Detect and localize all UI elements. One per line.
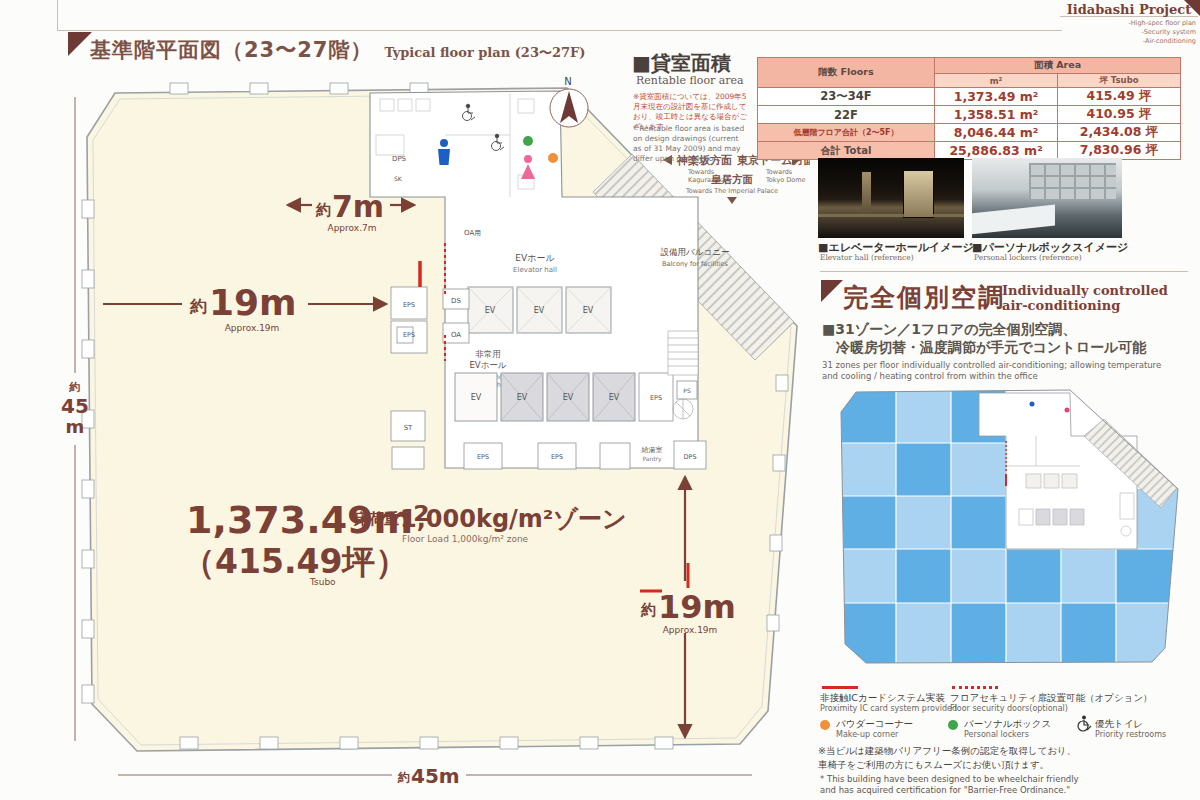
balcony-label-jp: 設備用バルコニー <box>661 247 730 257</box>
dim-45mb-prefix: 約 <box>397 770 410 784</box>
aircon-title-en: Individually controlled air-conditioning <box>1002 284 1168 314</box>
eps-label: EPS <box>403 301 415 309</box>
dim-45m-num: 45 <box>61 394 89 418</box>
rentable-note-en: * Rentable floor area is based on design… <box>633 124 749 165</box>
dim-45m-bottom: 約 45m <box>118 764 752 788</box>
makeup-corner-dot <box>548 153 558 163</box>
lockers-photo-caption-en: Personal lockers (reference) <box>974 253 1082 262</box>
locker-grid <box>1029 163 1116 201</box>
lockers-dot <box>948 720 958 730</box>
ev-label: EV <box>534 306 545 315</box>
ev-label: EV <box>583 306 594 315</box>
st-label: ST <box>404 424 413 432</box>
dir-palace-jp: 皇居方面 <box>711 173 754 185</box>
area-tsubo-en: Tsubo <box>309 577 336 587</box>
floor-cell: 合計 Total <box>758 142 935 160</box>
table-row: 23〜34F 1,373.49 m² 415.49 坪 <box>758 88 1181 106</box>
makeup-corner-dot <box>820 720 830 730</box>
col-area: 面積 Area <box>935 58 1181 74</box>
aircon-zone-plan <box>820 386 1190 684</box>
rentable-heading-en: Rentable floor area <box>636 74 744 87</box>
ev-label: EV <box>485 306 496 315</box>
sk-label: SK <box>394 175 403 182</box>
dim-7m-value: 7m <box>332 189 384 224</box>
eps-label: EPS <box>477 453 489 461</box>
ev-label: EV <box>609 393 620 402</box>
compass: N <box>550 76 588 127</box>
mini-male-icon <box>1030 402 1035 407</box>
col-floors: 階数 Floors <box>758 58 935 88</box>
dim-7m-en: Approx.7m <box>328 223 377 233</box>
balcony-label-en: Balcony for facilities <box>662 260 728 268</box>
pantry-label-jp: 給湯室 <box>641 446 663 454</box>
title-marker <box>68 32 92 56</box>
table-row: 低層階フロア合計（2〜5F） 8,046.44 m² 2,434.08 坪 <box>758 124 1181 142</box>
emergency-ev-jp1: 非常用 <box>475 349 501 359</box>
tsubo-cell: 410.95 坪 <box>1058 106 1181 124</box>
main-floor-plan: EVホール Elevator hall EV EV EV DS OA 非常用 E… <box>40 75 810 800</box>
m2-cell: 1,358.51 m² <box>935 106 1058 124</box>
col-tsubo: 坪 Tsubo <box>1058 74 1181 88</box>
eps-label: EPS <box>403 331 415 339</box>
table-row: 合計 Total 25,886.83 m² 7,830.96 坪 <box>758 142 1181 160</box>
area-tsubo: （415.49坪） <box>182 542 408 581</box>
personal-lockers-dot <box>523 136 533 146</box>
elevator-hall-photo <box>818 158 964 238</box>
rentable-heading-jp: ■貸室面積 <box>632 50 731 77</box>
dim-19m-prefix: 約 <box>189 296 207 316</box>
barrier-note-en1: * This building have been designed to be… <box>820 774 1079 785</box>
dim-19m-right-value: 19m <box>658 588 736 626</box>
aircon-subtitle-line2: 冷暖房切替・温度調節が手元でコントロール可能 <box>836 338 1146 357</box>
barrier-note-en2: and has acquired certification for "Barr… <box>820 785 1070 796</box>
eps-label: EPS <box>650 394 662 402</box>
wheelchair-icon <box>1076 715 1092 733</box>
pantry-label-en: Pantry <box>642 455 662 463</box>
page-title-jp: 基準階平面図（23〜27階） <box>90 36 372 64</box>
brand-subline-3: -Air-conditioning <box>1100 36 1196 46</box>
aircon-title-en-line2: air-conditioning <box>1002 299 1168 314</box>
emergency-ev-jp2: EVホール <box>469 360 506 370</box>
ic-card-line-swatch <box>822 686 858 689</box>
page-title: 基準階平面図（23〜27階） Typical floor plan (23〜27… <box>90 36 585 64</box>
floor-cell: 23〜34F <box>758 88 935 106</box>
floor-load-en: Floor Load 1,000kg/m² zone <box>402 534 529 544</box>
rentable-area-table: 階数 Floors 面積 Area m² 坪 Tsubo 23〜34F 1,37… <box>757 57 1181 160</box>
dps-label: DPS <box>683 453 696 461</box>
dps-label: DPS <box>392 155 407 163</box>
security-door-label-en: Floor security doors(optional) <box>950 704 1068 713</box>
dim-19m-value: 19m <box>209 282 297 323</box>
elevator-photo-caption-en: Elevator hall (reference) <box>820 253 914 262</box>
table-header-row: 階数 Floors 面積 Area <box>758 58 1181 74</box>
dim-45m-prefix: 約 <box>69 381 81 394</box>
ps-label: PS <box>683 387 691 394</box>
aircon-title-en-line1: Individually controlled <box>1002 284 1168 299</box>
arrow-down-icon <box>727 197 737 204</box>
ev-hall-label-jp: EVホール <box>515 253 554 263</box>
page-title-en: Typical floor plan (23〜27F) <box>384 44 585 62</box>
ev-hall-label-en: Elevator hall <box>513 266 557 274</box>
aircon-title-jp: 完全個別空調 <box>843 281 1005 314</box>
floor-cell: 22F <box>758 106 935 124</box>
m2-cell: 1,373.49 m² <box>935 88 1058 106</box>
oa-label: OA <box>451 331 461 339</box>
locker-counter <box>972 205 1055 234</box>
barrier-note-jp1: ※当ビルは建築物バリアフリー条例の認定を取得しており、 <box>818 744 1076 757</box>
personal-lockers-photo <box>972 158 1122 238</box>
makeup-label-en: Make-up corner <box>836 730 898 739</box>
lockers-label-en: Personal lockers <box>964 730 1029 739</box>
compass-n: N <box>564 76 571 87</box>
tsubo-cell: 415.49 坪 <box>1058 88 1181 106</box>
section-divider <box>820 271 1188 272</box>
elevator-door <box>903 170 934 218</box>
brand-title: Iidabashi Project <box>1062 2 1196 17</box>
dim-7m-prefix: 約 <box>315 201 331 219</box>
ic-card-label-en: Proximity IC card system provided <box>820 704 957 713</box>
eps-label: EPS <box>551 453 563 461</box>
dir-dome-en1: Towards <box>765 168 793 176</box>
aircon-marker <box>821 280 843 302</box>
m2-cell: 25,886.83 m² <box>935 142 1058 160</box>
aircon-body-line2: and cooling / heating control from withi… <box>822 371 1038 383</box>
dim-19m-en: Approx.19m <box>225 323 280 333</box>
barrier-note-jp2: 車椅子をご利用の方にもスムーズにお使い頂けます。 <box>818 758 1049 771</box>
floor-highlight <box>818 214 964 217</box>
dim-45mb-value: 45m <box>411 764 460 788</box>
ev-label: EV <box>471 393 482 402</box>
aircon-subtitle-line1: ■31ゾーン／1フロアの完全個別空調、 <box>822 320 1076 339</box>
elevator-door-slit <box>862 172 871 214</box>
left-margin-rule <box>57 0 58 31</box>
ev-label: EV <box>517 393 528 402</box>
floor-load-value: 1,000kg/m²ゾーン <box>400 505 626 533</box>
dim-19m-right-en: Approx.19m <box>663 625 718 635</box>
ds-label: DS <box>451 297 461 305</box>
dim-19m-right-prefix: 約 <box>640 601 656 619</box>
col-m2: m² <box>935 74 1058 88</box>
dim-45m-unit: m <box>66 416 85 437</box>
dir-palace-en: Towards The Imperial Palace <box>685 187 778 195</box>
mini-female-icon <box>1065 408 1070 413</box>
ev-label: EV <box>563 393 574 402</box>
brochure-page: Iidabashi Project -High-spec floor plan … <box>0 0 1200 800</box>
oa-room-label: OA用 <box>464 229 481 237</box>
priority-label-en: Priority restrooms <box>1095 730 1166 739</box>
tsubo-cell: 7,830.96 坪 <box>1058 142 1181 160</box>
floor-load-prefix: 床荷重 <box>353 510 399 528</box>
security-door-line-swatch <box>952 686 998 689</box>
table-row: 22F 1,358.51 m² 410.95 坪 <box>758 106 1181 124</box>
top-rule <box>57 30 1062 31</box>
tsubo-cell: 2,434.08 坪 <box>1058 124 1181 142</box>
dir-dome-en2: Tokyo Dome <box>765 176 806 184</box>
floor-cell: 低層階フロア合計（2〜5F） <box>758 124 935 142</box>
m2-cell: 8,046.44 m² <box>935 124 1058 142</box>
